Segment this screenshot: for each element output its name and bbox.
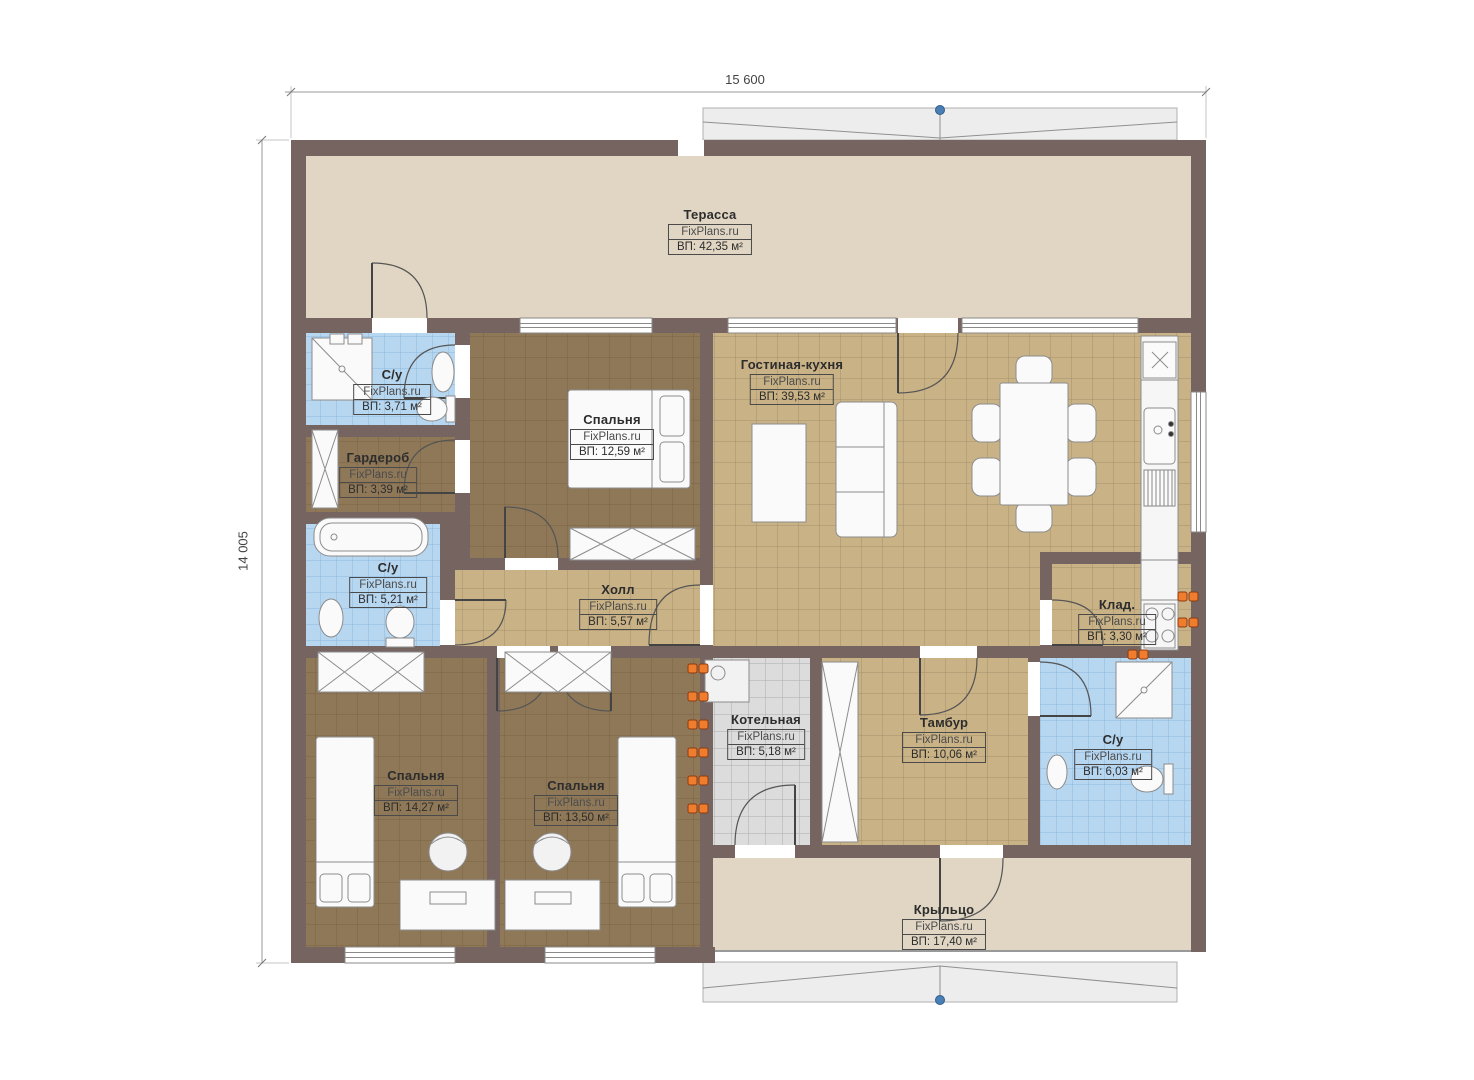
chair <box>1066 404 1096 442</box>
chair-2 <box>429 833 467 871</box>
shower-right <box>1116 662 1172 718</box>
chair <box>1066 458 1096 496</box>
chair <box>1016 502 1052 532</box>
sink-left <box>319 599 343 637</box>
sink-top <box>432 352 454 392</box>
wardrobe-3 <box>505 652 611 692</box>
roof-marker-top <box>936 106 945 115</box>
desk-3 <box>505 880 600 930</box>
dining-table <box>1000 383 1068 505</box>
room-label-storage: Клад. FixPlans.ru ВП: 3,30 м² <box>1078 597 1156 645</box>
chair-3 <box>533 833 571 871</box>
chair <box>1016 356 1052 386</box>
tambour-wardrobe <box>822 662 858 842</box>
toilet-left <box>386 606 414 647</box>
room-label-hall: Холл FixPlans.ru ВП: 5,57 м² <box>579 582 657 630</box>
bed-2 <box>316 737 374 907</box>
floor-plan-drawing <box>0 0 1474 1080</box>
room-label-wc-left: С/у FixPlans.ru ВП: 5,21 м² <box>349 560 427 608</box>
sink-right <box>1047 755 1067 789</box>
washer-icon <box>330 334 344 344</box>
room-label-wardrobe: Гардероб FixPlans.ru ВП: 3,39 м² <box>339 450 417 498</box>
room-label-terrace: Терасса FixPlans.ru ВП: 42,35 м² <box>668 207 752 255</box>
room-label-bedroom-1: Спальня FixPlans.ru ВП: 12,59 м² <box>570 412 654 460</box>
chair <box>972 458 1002 496</box>
wardrobe-cabinet <box>312 430 338 508</box>
room-label-wc-right: С/у FixPlans.ru ВП: 6,03 м² <box>1074 732 1152 780</box>
kitchen-sink <box>1144 408 1175 464</box>
bathtub <box>314 518 428 556</box>
roof-marker-bottom <box>936 996 945 1005</box>
kitchen-island <box>752 424 806 522</box>
floor-plan-canvas: 15 600 14 005 <box>0 0 1474 1080</box>
canopy-top <box>703 106 1177 141</box>
washer-icon <box>348 334 362 344</box>
room-label-bedroom-3: Спальня FixPlans.ru ВП: 13,50 м² <box>534 778 618 826</box>
desk-2 <box>400 880 495 930</box>
room-label-wc-top: С/у FixPlans.ru ВП: 3,71 м² <box>353 367 431 415</box>
wardrobe-1 <box>570 528 695 560</box>
bed-3 <box>618 737 676 907</box>
room-label-boiler: Котельная FixPlans.ru ВП: 5,18 м² <box>727 712 805 760</box>
dish-rack <box>1144 470 1175 506</box>
vent-hood <box>1143 342 1176 378</box>
room-label-bedroom-2: Спальня FixPlans.ru ВП: 14,27 м² <box>374 768 458 816</box>
dimension-left-label: 14 005 <box>236 531 251 571</box>
canopy-bottom <box>703 962 1177 1005</box>
sofa <box>836 402 897 537</box>
chair <box>972 404 1002 442</box>
boiler-unit <box>705 660 749 702</box>
room-label-porch: Крыльцо FixPlans.ru ВП: 17,40 м² <box>902 902 986 950</box>
wardrobe-2 <box>318 652 424 692</box>
room-label-tambour: Тамбур FixPlans.ru ВП: 10,06 м² <box>902 715 986 763</box>
room-label-living: Гостиная-кухня FixPlans.ru ВП: 39,53 м² <box>741 357 843 405</box>
dimension-top-label: 15 600 <box>725 72 765 87</box>
